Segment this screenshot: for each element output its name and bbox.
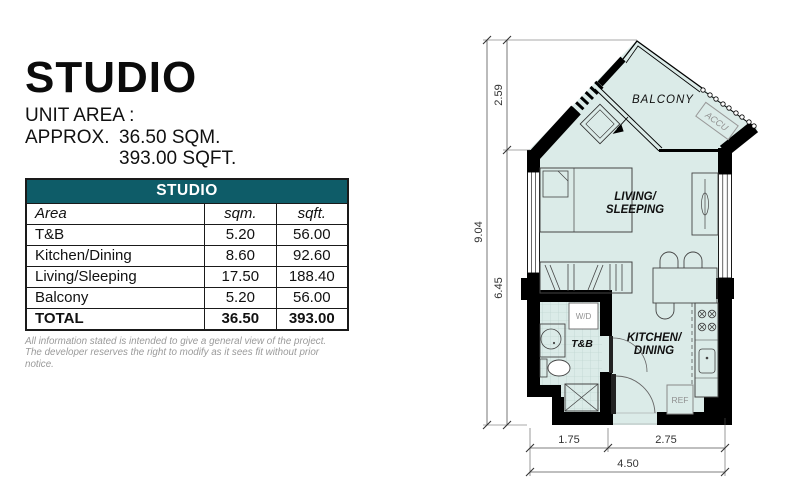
left-window <box>528 172 540 273</box>
cell-sqm: 17.50 <box>205 266 276 287</box>
dim-bottom-right: 2.75 <box>655 434 676 446</box>
area-table: STUDIO Area sqm. sqft. T&B 5.20 56.00 Ki… <box>25 178 349 331</box>
cell-sqm: 5.20 <box>205 224 276 245</box>
cell-area: Kitchen/Dining <box>26 245 205 266</box>
cell-sqft: 92.60 <box>276 245 348 266</box>
cell-sqm: 5.20 <box>205 287 276 308</box>
info-panel: STUDIO UNIT AREA : APPROX.36.50 SQM. 393… <box>25 56 349 370</box>
disclaimer: All information stated is intended to gi… <box>25 336 349 371</box>
table-row: Kitchen/Dining 8.60 92.60 <box>26 245 348 266</box>
entry-gap <box>613 412 657 425</box>
page: STUDIO UNIT AREA : APPROX.36.50 SQM. 393… <box>0 0 800 500</box>
cell-area: Balcony <box>26 287 205 308</box>
right-window <box>719 174 732 278</box>
table-column-header-row: Area sqm. sqft. <box>26 203 348 224</box>
col-header-sqm: sqm. <box>205 203 276 224</box>
label-kitchen-1: KITCHEN/ <box>627 332 683 344</box>
table-row: T&B 5.20 56.00 <box>26 224 348 245</box>
cell-sqft: 188.40 <box>276 266 348 287</box>
approx-label: APPROX. <box>25 127 119 149</box>
refrigerator: REF <box>667 385 693 414</box>
col-header-area: Area <box>26 203 205 224</box>
cell-sqm-total: 36.50 <box>205 308 276 330</box>
cell-area: Living/Sleeping <box>26 266 205 287</box>
unit-area-block: UNIT AREA : APPROX.36.50 SQM. 393.00 SQF… <box>25 105 349 170</box>
table-title-row: STUDIO <box>26 179 348 204</box>
label-living-1: LIVING/ <box>614 191 657 203</box>
cell-area: T&B <box>26 224 205 245</box>
page-title: STUDIO <box>25 56 349 100</box>
label-wd: W/D <box>576 312 592 321</box>
disclaimer-line1: All information stated is intended to gi… <box>25 336 349 348</box>
table-row: Balcony 5.20 56.00 <box>26 287 348 308</box>
sqft-value: 393.00 SQFT. <box>25 148 349 170</box>
exterior-notch <box>516 397 552 428</box>
dim-bottom-left: 1.75 <box>558 434 579 446</box>
disclaimer-line2: The developer reserves the right to modi… <box>25 347 349 370</box>
unit-area-label: UNIT AREA : <box>25 105 349 127</box>
dim-main-depth: 6.45 <box>493 277 505 298</box>
cell-sqft-total: 393.00 <box>276 308 348 330</box>
sqm-value: 36.50 SQM. <box>119 127 220 148</box>
col-header-sqft: sqft. <box>276 203 348 224</box>
dim-bottom-overall: 4.50 <box>617 458 638 470</box>
tb-door <box>609 336 613 373</box>
cell-sqm: 8.60 <box>205 245 276 266</box>
dim-balcony-depth: 2.59 <box>493 84 505 105</box>
label-kitchen-2: DINING <box>634 345 674 357</box>
unit-area-sqm: APPROX.36.50 SQM. <box>25 127 349 149</box>
cell-sqft: 56.00 <box>276 287 348 308</box>
label-living-2: SLEEPING <box>606 204 664 216</box>
ref-label: REF <box>672 395 689 405</box>
label-tb: T&B <box>571 338 593 350</box>
dim-overall-height: 9.04 <box>473 221 485 242</box>
cell-sqft: 56.00 <box>276 224 348 245</box>
toilet-bowl <box>548 360 570 376</box>
label-balcony: BALCONY <box>632 94 694 106</box>
table-title: STUDIO <box>26 179 348 204</box>
table-total-row: TOTAL 36.50 393.00 <box>26 308 348 330</box>
cell-area-total: TOTAL <box>26 308 205 330</box>
table-row: Living/Sleeping 17.50 188.40 <box>26 266 348 287</box>
floorplan: ACCU <box>470 0 800 500</box>
